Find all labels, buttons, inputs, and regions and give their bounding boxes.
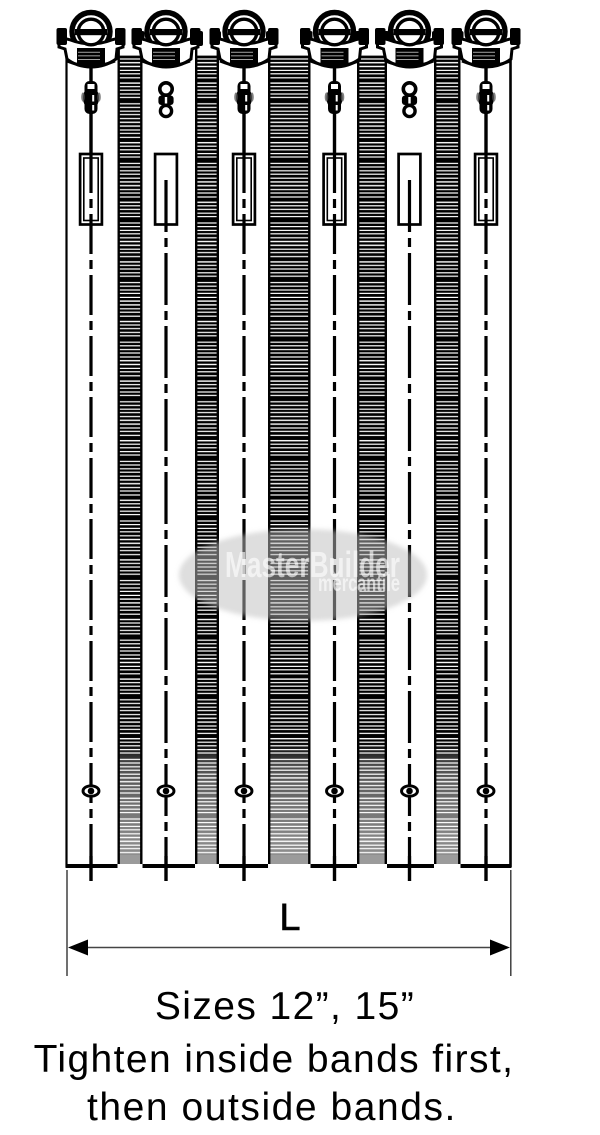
- svg-text:L: L: [279, 897, 300, 939]
- svg-text:Sizes 12”, 15”: Sizes 12”, 15”: [155, 985, 415, 1028]
- svg-text:mercantile: mercantile: [318, 570, 400, 596]
- svg-text:then outside bands.: then outside bands.: [87, 1086, 457, 1129]
- svg-text:Tighten inside bands first,: Tighten inside bands first,: [34, 1038, 515, 1081]
